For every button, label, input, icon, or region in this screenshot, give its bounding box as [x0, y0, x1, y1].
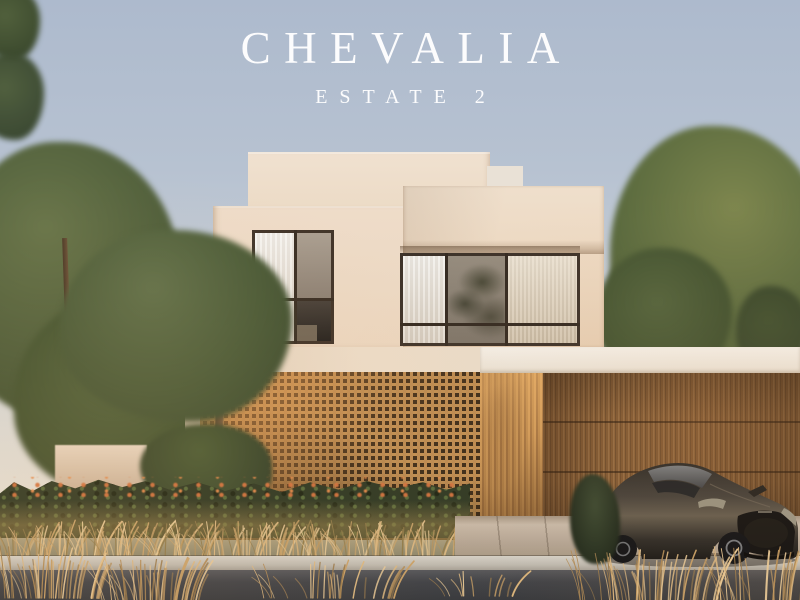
living-room-window [400, 253, 580, 346]
hero-render: 028 [0, 0, 800, 600]
textured-curtain [508, 256, 577, 343]
window-glass-tree-reflection [448, 256, 505, 343]
window-mullion [294, 230, 297, 344]
window-mullion [400, 323, 580, 326]
window-mullion [445, 253, 448, 346]
perimeter-wall-beam [480, 347, 800, 373]
tree-canopy-front [60, 230, 292, 422]
page-title: CHEVALIA [0, 26, 800, 71]
window-mullion [505, 253, 508, 346]
page-subtitle: ESTATE 2 [0, 87, 800, 107]
hero-text-block: CHEVALIA ESTATE 2 [0, 26, 800, 107]
interior-furniture [297, 325, 317, 341]
window-glass [297, 233, 331, 298]
roadside-grass [0, 528, 800, 600]
sheer-curtain [403, 256, 445, 343]
villa-roof-step [487, 166, 523, 188]
timber-slat-gate [480, 373, 543, 525]
